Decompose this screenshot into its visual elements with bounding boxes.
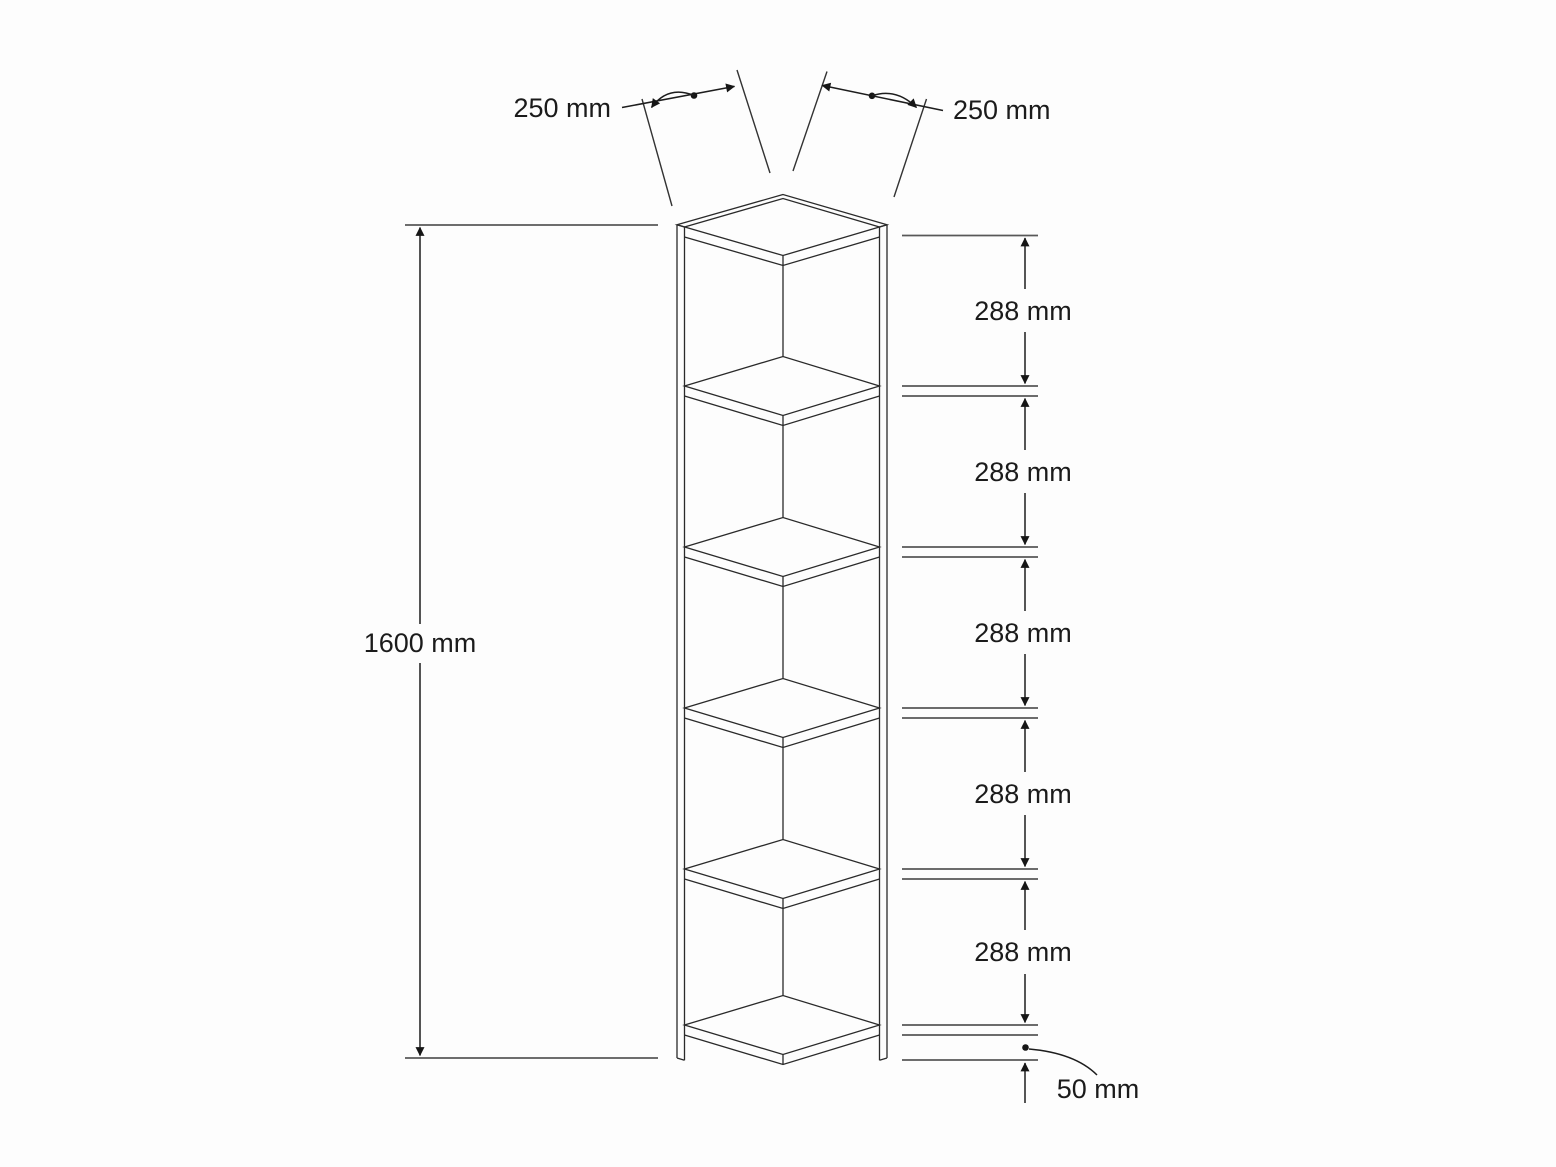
top-panel-surface xyxy=(677,195,887,256)
shelf-2-surface xyxy=(685,518,880,577)
bottom-clearance-label: 50 mm xyxy=(1057,1074,1140,1104)
depth-right-dim-line xyxy=(822,85,943,110)
top-panel-thickness-edge xyxy=(685,237,880,266)
shelf-spacing-dimension-4: 288 mm xyxy=(974,721,1072,867)
depth-dimension-left-label: 250 mm xyxy=(513,93,611,123)
depth-dimension-right: 250 mm xyxy=(793,72,1051,198)
corner-shelf-technical-drawing: 1600 mm 250 mm 250 mm 288 mm 288 mm 288 … xyxy=(0,0,1556,1167)
bottom-panel-thickness-edge xyxy=(685,1035,880,1065)
depth-right-extension-lines xyxy=(793,72,927,198)
shelf-spacing-dimension-3: 288 mm xyxy=(974,560,1072,706)
height-dimension-label: 1600 mm xyxy=(364,628,477,658)
shelf-4-thickness-edge xyxy=(685,879,880,909)
depth-dimension-left: 250 mm xyxy=(513,70,770,206)
shelf-unit-drawing xyxy=(677,195,887,1065)
shelf-spacing-label-2: 288 mm xyxy=(974,457,1072,487)
bottom-clearance-leader-dot xyxy=(1022,1044,1029,1051)
shelf-3-thickness-edge xyxy=(685,718,880,748)
shelf-1-thickness-edge xyxy=(685,396,880,426)
shelf-spacing-dimension-5: 288 mm xyxy=(974,882,1072,1023)
depth-left-extension-lines xyxy=(642,70,770,206)
shelf-4-surface xyxy=(685,840,880,899)
shelf-1-surface xyxy=(685,357,880,416)
height-dimension: 1600 mm xyxy=(364,225,658,1058)
bottom-clearance-dimension: 50 mm xyxy=(1022,1044,1139,1104)
shelf-spacing-label-3: 288 mm xyxy=(974,618,1072,648)
shelf-spacing-label-4: 288 mm xyxy=(974,779,1072,809)
bottom-panel-surface xyxy=(685,996,880,1055)
shelf-spacing-dimension-2: 288 mm xyxy=(974,399,1072,545)
shelf-2-thickness-edge xyxy=(685,557,880,587)
top-panel-inner-edges xyxy=(685,199,880,228)
shelf-spacing-label-5: 288 mm xyxy=(974,937,1072,967)
shelf-3-surface xyxy=(685,679,880,738)
shelf-spacing-label-1: 288 mm xyxy=(974,296,1072,326)
right-side-panel xyxy=(880,225,888,1061)
depth-left-dim-line xyxy=(622,86,735,107)
bottom-clearance-leader-curve xyxy=(1029,1049,1097,1075)
left-side-panel xyxy=(677,225,685,1061)
depth-dimension-right-label: 250 mm xyxy=(953,95,1051,125)
shelf-spacing-dimension-1: 288 mm xyxy=(974,238,1072,384)
drawing-canvas: 1600 mm 250 mm 250 mm 288 mm 288 mm 288 … xyxy=(0,0,1556,1167)
